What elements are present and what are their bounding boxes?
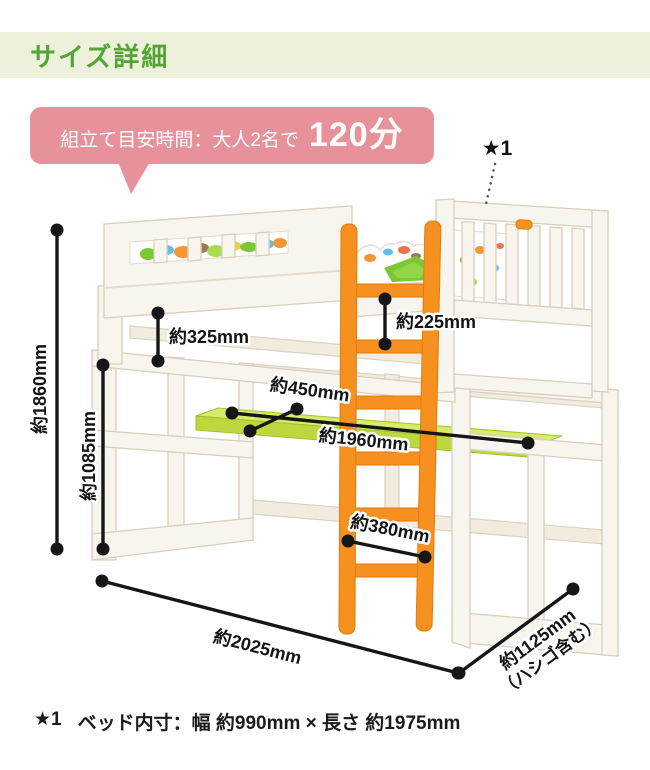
- footnote-marker: ★1: [34, 708, 62, 735]
- star-reference: ★1: [482, 137, 513, 204]
- footnote: ★1 ベッド内寸：幅 約990mm × 長さ 約1975mm: [34, 708, 460, 735]
- dimension-endpoint: [96, 575, 109, 588]
- dimension-endpoint: [97, 359, 110, 372]
- dimension-label: 約1085mm: [78, 411, 99, 501]
- footnote-text: ベッド内寸：幅 約990mm × 長さ 約1975mm: [78, 708, 461, 735]
- dimension-label: 約1860mm: [29, 344, 50, 434]
- dimension-endpoint: [51, 224, 64, 237]
- dimension-endpoint: [291, 403, 304, 416]
- dimension-label: 約225mm: [396, 311, 476, 332]
- dimension-endpoint: [152, 307, 165, 320]
- dimension-endpoint: [342, 535, 355, 548]
- lower-left-panel: [92, 350, 253, 560]
- dimension-endpoint: [226, 407, 239, 420]
- size-detail-panel: サイズ詳細 組立て目安時間：大人2名で 120分: [0, 0, 650, 770]
- star-reference-marker: ★1: [482, 137, 513, 160]
- dimension-endpoint: [567, 583, 580, 596]
- headboard-handle-icon: [516, 220, 532, 230]
- dimension-total-width: 約2025mm: [96, 575, 465, 680]
- loft-bed-illustration: [92, 199, 618, 656]
- dimension-endpoint: [522, 437, 535, 450]
- star-reference-dotted-line: [486, 164, 495, 204]
- dimension-label: 約2025mm: [211, 625, 303, 668]
- lower-right-panel: [452, 376, 618, 656]
- loft-bed-diagram: 約1860mm 約1085mm 約325mm 約225mm: [0, 0, 650, 770]
- dimension-label: 約325mm: [169, 326, 249, 347]
- dimension-total-height: 約1860mm: [29, 224, 64, 556]
- dimension-endpoint: [453, 667, 466, 680]
- dimension-endpoint: [152, 355, 165, 368]
- dimension-endpoint: [97, 543, 110, 556]
- dimension-endpoint: [51, 543, 64, 556]
- dimension-endpoint: [379, 293, 392, 306]
- dimension-endpoint: [244, 425, 257, 438]
- dimension-endpoint: [379, 338, 392, 351]
- dimension-endpoint: [419, 551, 432, 564]
- headboard: [436, 199, 608, 398]
